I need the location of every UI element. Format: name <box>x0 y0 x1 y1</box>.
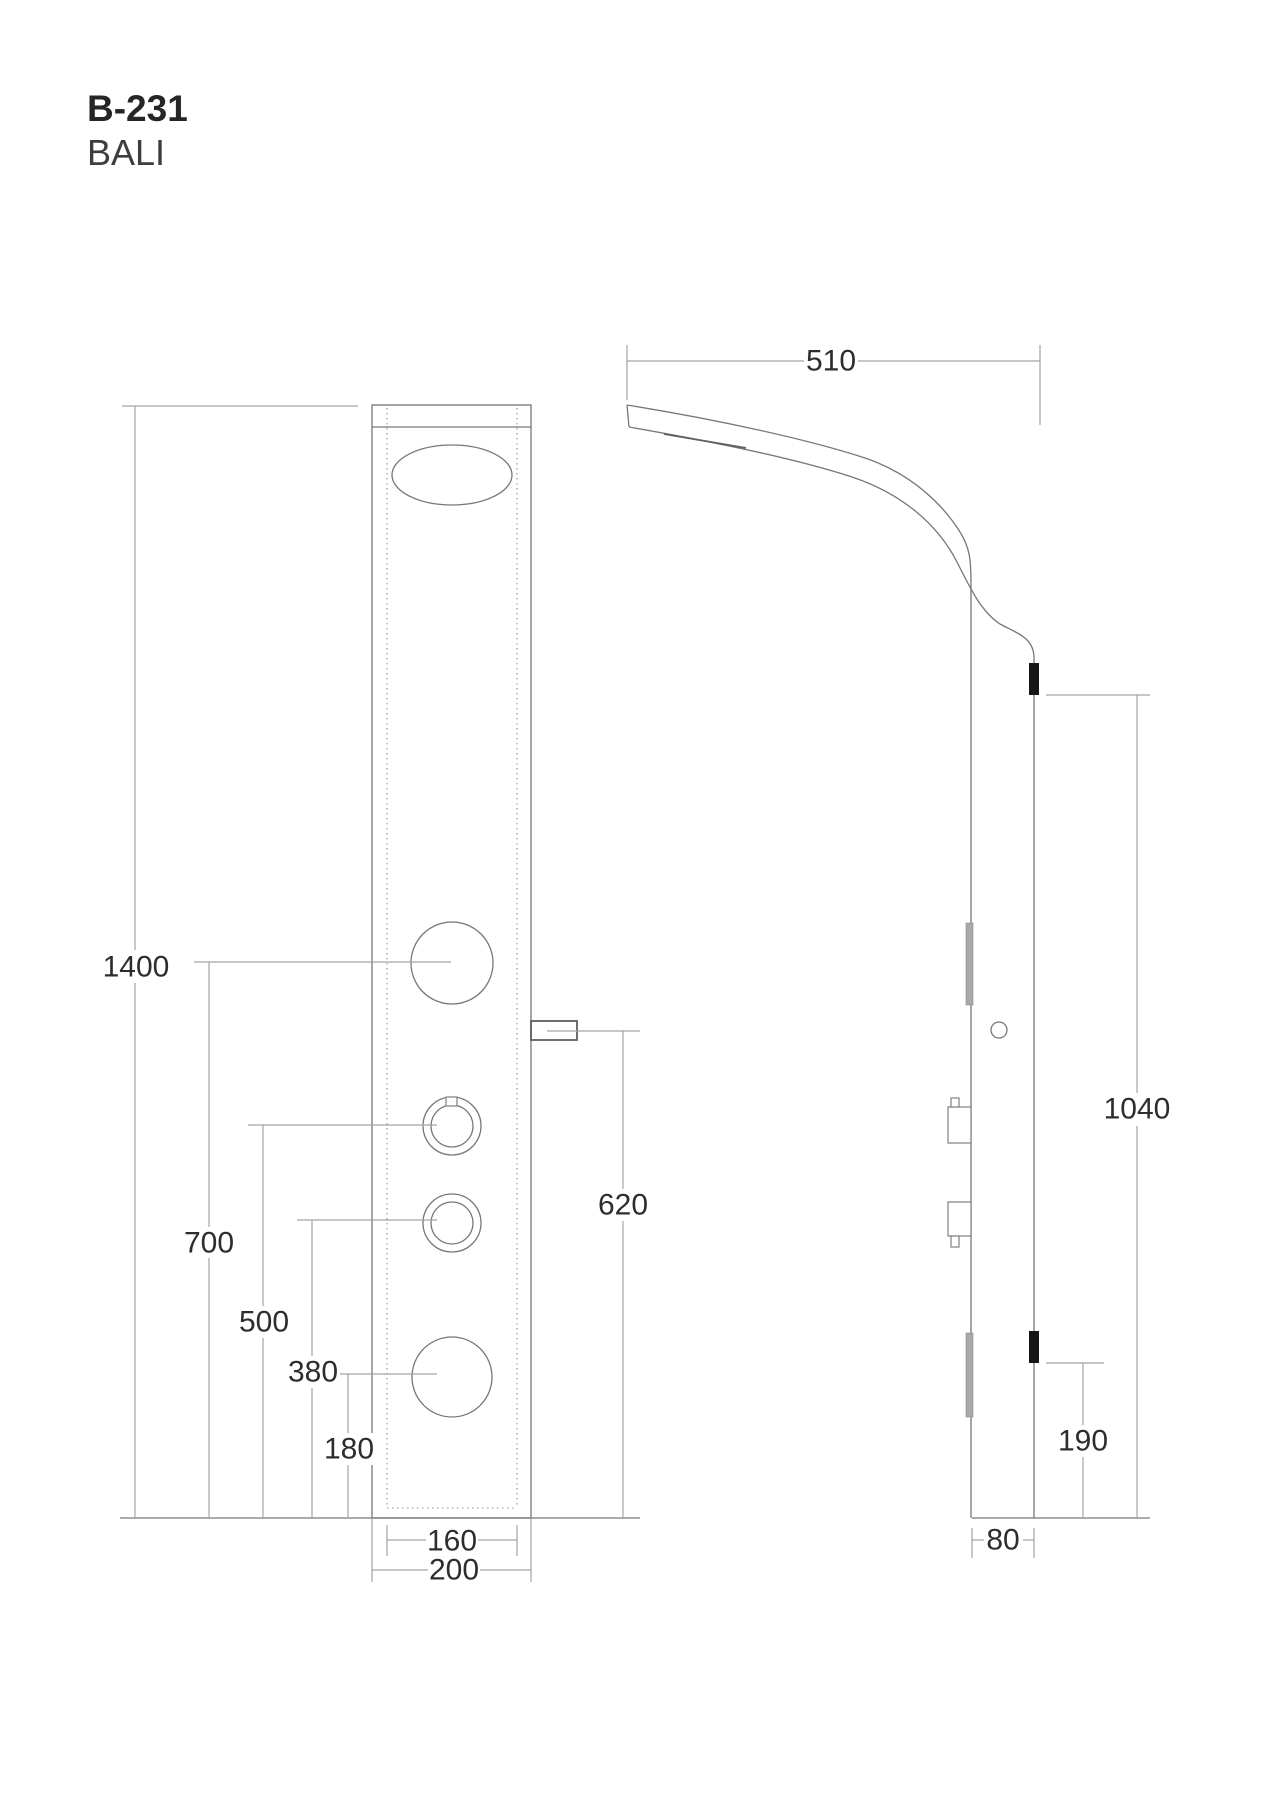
dim-1400-label: 1400 <box>103 951 170 984</box>
overhead-shower-ellipse <box>392 445 512 505</box>
dimension-label-backgrounds <box>110 345 1169 1586</box>
dim-620-label: 620 <box>598 1189 648 1222</box>
technical-drawing: B-231 BALI <box>0 0 1273 1800</box>
head-tip-edge <box>627 405 629 427</box>
side-view <box>627 345 1150 1558</box>
front-view <box>120 405 640 1582</box>
dim-380-label: 380 <box>288 1356 338 1389</box>
title-block: B-231 BALI <box>87 88 188 173</box>
lower-knob-side-bracket <box>948 1202 971 1236</box>
dim-1040-label: 1040 <box>1104 1093 1171 1126</box>
upper-body-jet-circle <box>411 922 493 1004</box>
dim-80-label: 80 <box>986 1524 1019 1557</box>
upper-knob-notch <box>446 1097 457 1106</box>
lower-knob-inner-circle <box>431 1202 473 1244</box>
upper-jet-side-bar <box>966 923 973 1005</box>
wall-bracket-lower-mark <box>1029 1331 1039 1363</box>
lower-jet-side-bar <box>966 1333 973 1417</box>
dim-190-label: 190 <box>1058 1425 1108 1458</box>
dim-200-label: 200 <box>429 1554 479 1587</box>
spout-side-hole <box>991 1022 1007 1038</box>
dim-180-label: 180 <box>324 1433 374 1466</box>
catalog-page: B-231 BALI <box>0 0 1273 1800</box>
lower-body-jet-circle <box>412 1337 492 1417</box>
product-name: BALI <box>87 132 165 173</box>
model-code: B-231 <box>87 88 188 129</box>
lower-knob-outer-circle <box>423 1194 481 1252</box>
upper-knob-inner-circle <box>431 1105 473 1147</box>
upper-knob-side-tab <box>951 1098 959 1107</box>
dim-700-label: 700 <box>184 1227 234 1260</box>
lower-knob-side-tab <box>951 1236 959 1247</box>
dim-500-label: 500 <box>239 1306 289 1339</box>
dim-510-label: 510 <box>806 345 856 378</box>
upper-knob-side-bracket <box>948 1107 971 1143</box>
wall-bracket-upper-mark <box>1029 663 1039 695</box>
head-face-edge <box>664 434 746 448</box>
arm-outer-curve <box>627 405 971 1518</box>
